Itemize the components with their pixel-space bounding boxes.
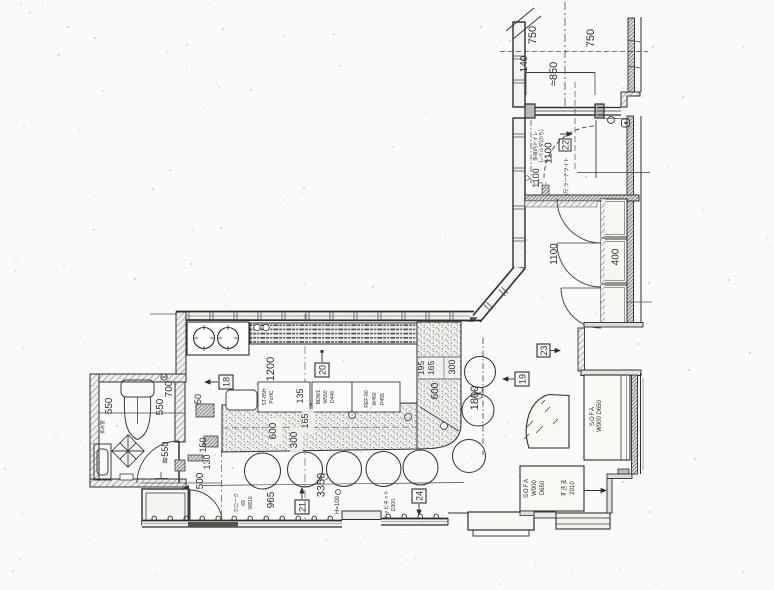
svg-text:W900: W900 bbox=[532, 480, 538, 496]
svg-text:300: 300 bbox=[289, 431, 300, 448]
svg-text:クローク: クローク bbox=[234, 493, 240, 513]
svg-text:1100: 1100 bbox=[531, 168, 541, 187]
svg-text:多目的トイレ: 多目的トイレ bbox=[532, 131, 539, 161]
svg-text:700: 700 bbox=[164, 380, 175, 397]
svg-text:≈850: ≈850 bbox=[548, 62, 560, 86]
svg-text:300: 300 bbox=[447, 359, 457, 374]
svg-text:H=100: H=100 bbox=[335, 495, 341, 514]
svg-text:ST-85H: ST-85H bbox=[262, 388, 268, 405]
svg-text:140: 140 bbox=[519, 55, 530, 72]
svg-text:965: 965 bbox=[266, 491, 277, 508]
svg-text:400: 400 bbox=[611, 248, 622, 265]
svg-text:19: 19 bbox=[518, 374, 528, 384]
svg-text:P455: P455 bbox=[380, 393, 386, 405]
svg-text:W550: W550 bbox=[323, 390, 329, 403]
svg-text:W450: W450 bbox=[372, 392, 378, 405]
svg-text:2010: 2010 bbox=[570, 481, 576, 495]
svg-text:すきま: すきま bbox=[561, 479, 568, 497]
svg-text:750: 750 bbox=[527, 26, 539, 44]
svg-text:24: 24 bbox=[415, 491, 425, 501]
svg-text:8尺 ラーチライト: 8尺 ラーチライト bbox=[564, 157, 570, 196]
svg-text:BDW1: BDW1 bbox=[316, 390, 322, 405]
svg-text:550: 550 bbox=[104, 397, 115, 414]
svg-text:165: 165 bbox=[300, 413, 310, 428]
svg-text:135: 135 bbox=[295, 388, 305, 403]
svg-text:600: 600 bbox=[268, 422, 279, 439]
svg-text:600: 600 bbox=[430, 382, 441, 399]
svg-text:165: 165 bbox=[426, 361, 436, 375]
svg-text:1100: 1100 bbox=[549, 243, 560, 265]
svg-text:50: 50 bbox=[193, 394, 203, 404]
svg-text:D650: D650 bbox=[540, 480, 546, 495]
svg-text:20: 20 bbox=[318, 365, 328, 375]
svg-text:500: 500 bbox=[195, 472, 206, 489]
svg-text:REF-90: REF-90 bbox=[364, 390, 370, 407]
svg-text:D300: D300 bbox=[391, 499, 397, 511]
svg-text:1800: 1800 bbox=[469, 386, 481, 410]
svg-text:1100: 1100 bbox=[544, 142, 555, 164]
svg-text:21: 21 bbox=[298, 502, 308, 512]
svg-text:1200: 1200 bbox=[265, 357, 277, 381]
svg-text:69: 69 bbox=[241, 500, 247, 506]
svg-text:130: 130 bbox=[202, 454, 212, 469]
svg-text:195: 195 bbox=[416, 361, 426, 375]
svg-text:SOFA: SOFA bbox=[524, 478, 530, 498]
svg-text:SOFA: SOFA bbox=[590, 406, 596, 426]
svg-text:18: 18 bbox=[222, 377, 232, 387]
svg-text:W810: W810 bbox=[248, 496, 254, 509]
svg-text:22: 22 bbox=[561, 140, 571, 150]
svg-text:排水管: 排水管 bbox=[99, 420, 106, 434]
svg-text:750: 750 bbox=[585, 29, 597, 47]
svg-text:23: 23 bbox=[539, 345, 549, 355]
svg-text:≋550: ≋550 bbox=[160, 442, 170, 465]
svg-text:PuHC: PuHC bbox=[269, 390, 275, 404]
svg-text:150: 150 bbox=[198, 437, 208, 452]
svg-text:W900 D650: W900 D650 bbox=[597, 399, 603, 431]
svg-text:D446: D446 bbox=[330, 391, 336, 403]
